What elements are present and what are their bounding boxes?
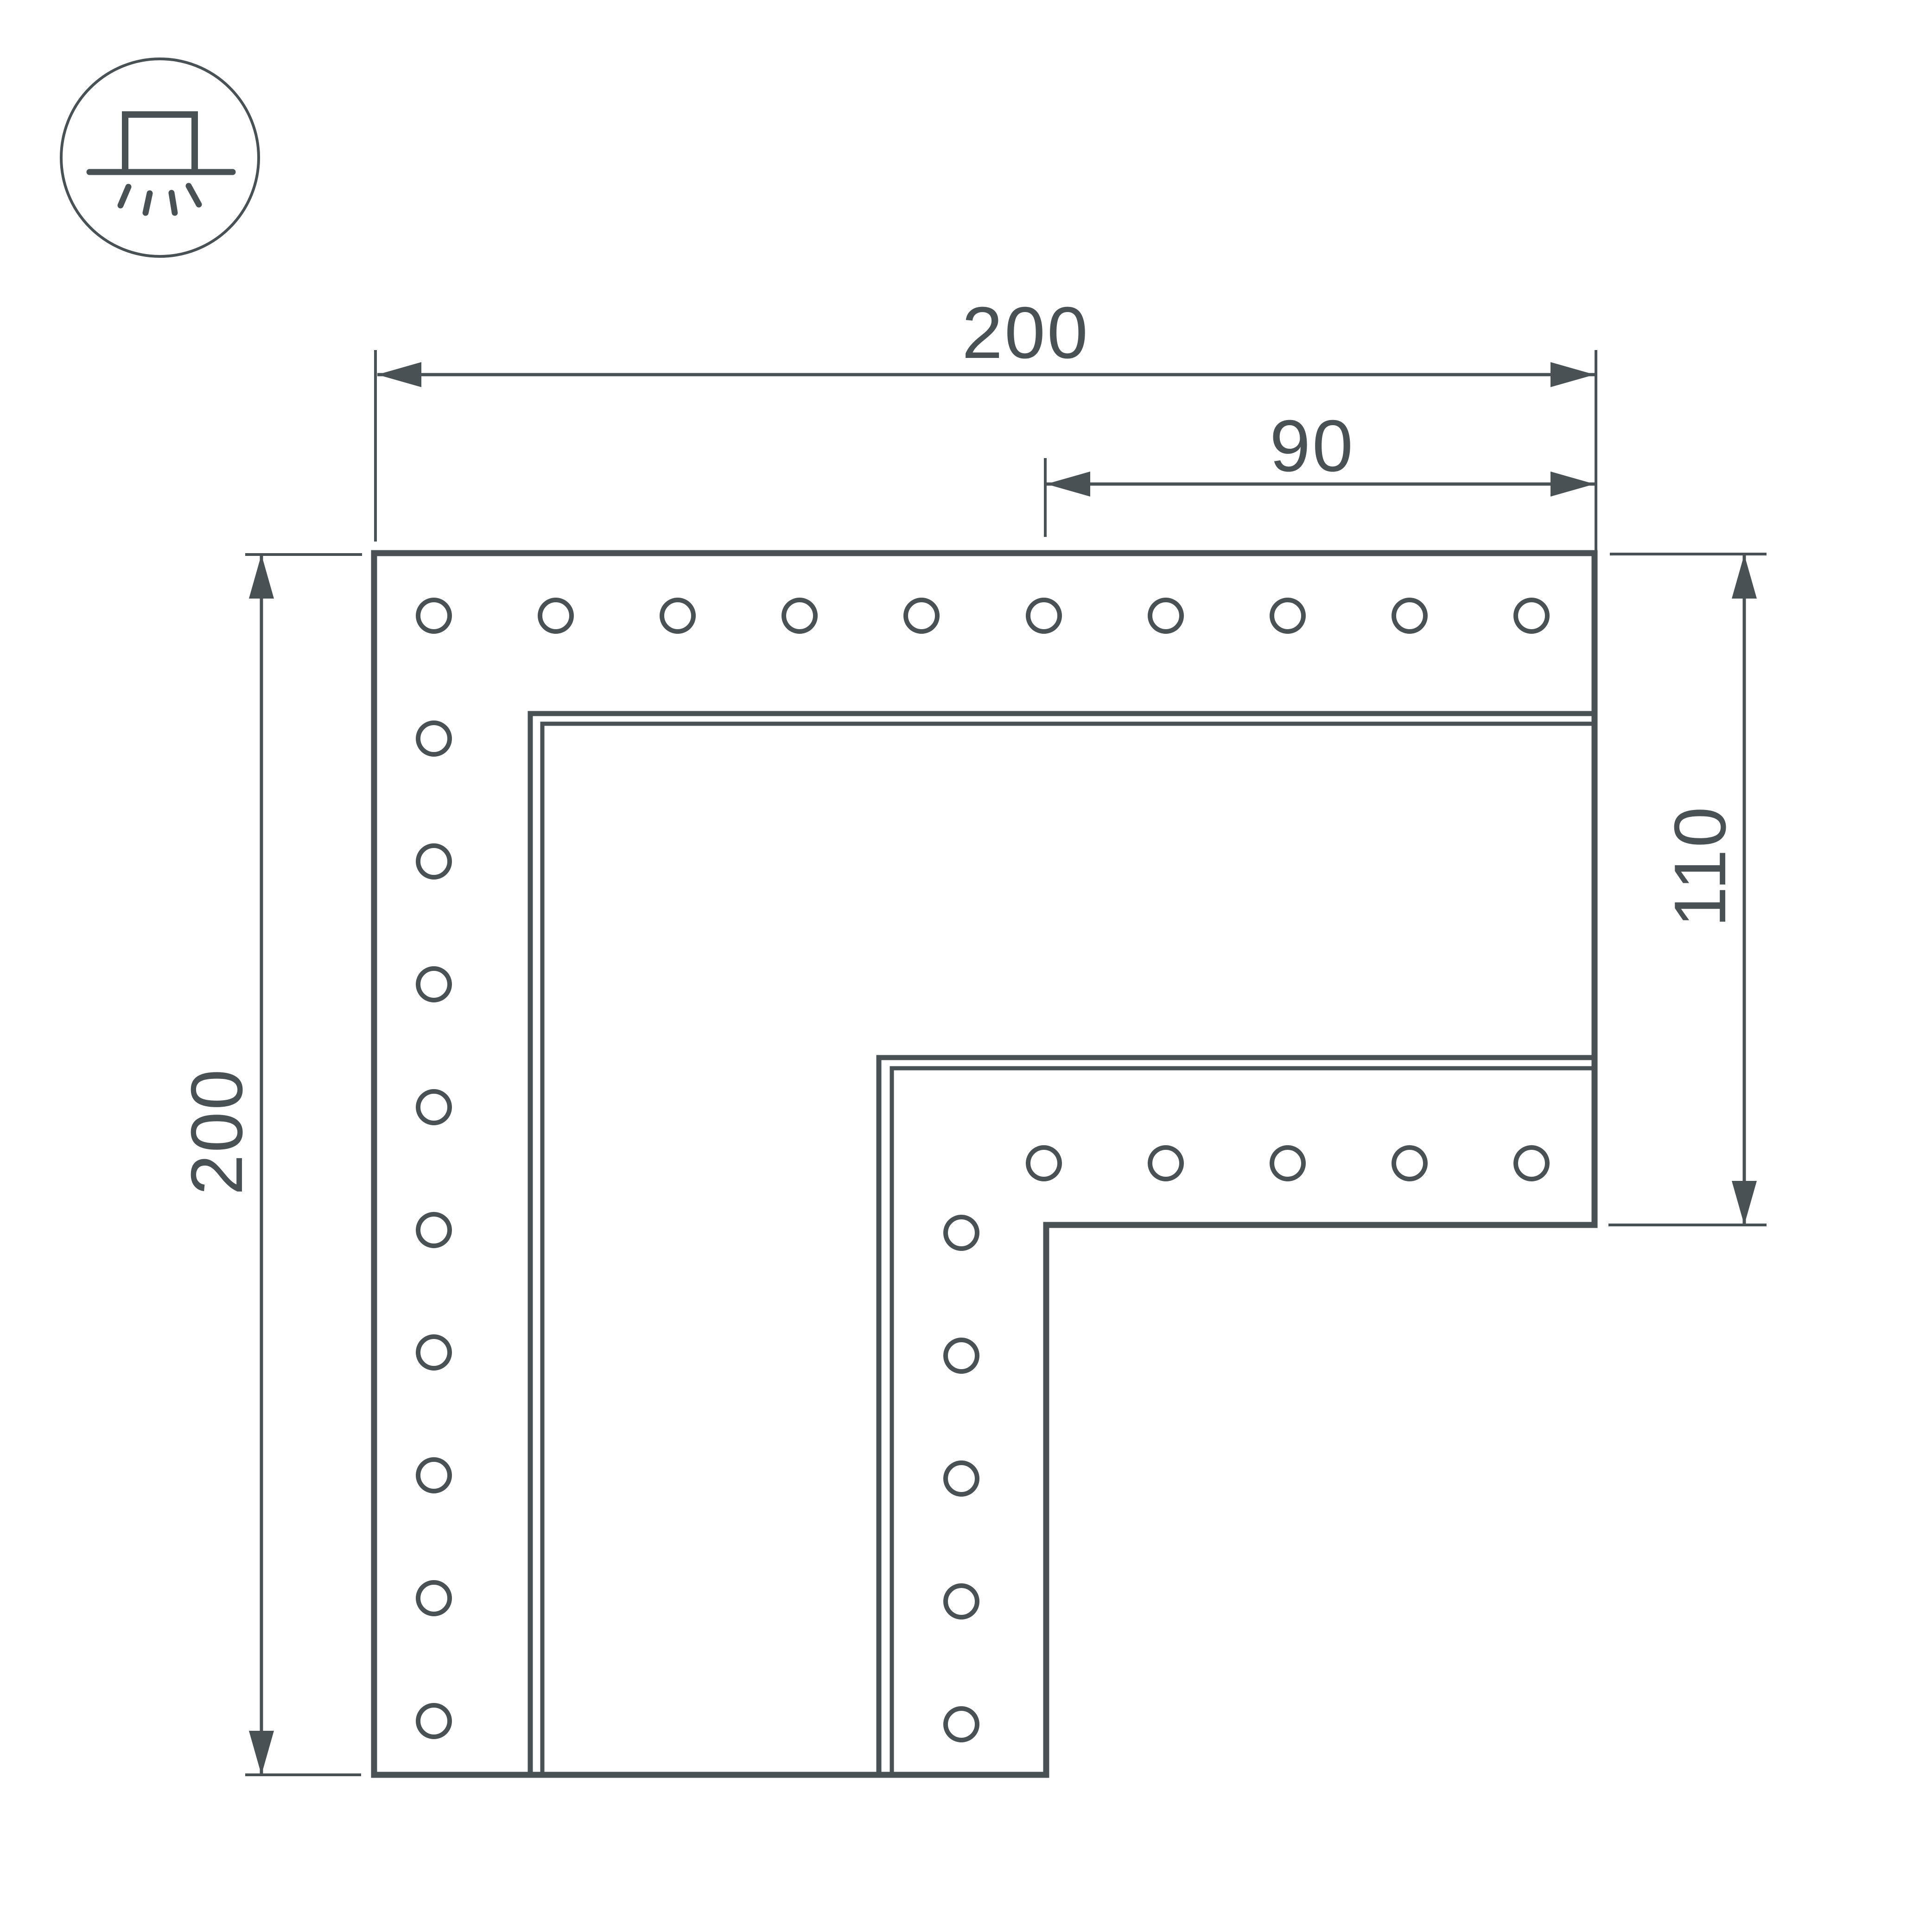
mounting-hole bbox=[1394, 1148, 1425, 1179]
mounting-hole bbox=[418, 1091, 450, 1123]
mounting-hole bbox=[1394, 600, 1425, 631]
mounting-hole bbox=[946, 1463, 977, 1494]
inner-plate-seam-line-inner bbox=[892, 1068, 1595, 1775]
technical-drawing-page: 200 90 200 110 bbox=[0, 0, 1932, 1932]
mounting-hole bbox=[1272, 1148, 1303, 1179]
mounting-hole bbox=[418, 1337, 450, 1368]
extension-lines bbox=[245, 350, 1767, 1775]
dimension-lines bbox=[261, 375, 1744, 1775]
mounting-hole bbox=[418, 600, 450, 631]
icon-light-ray bbox=[172, 193, 175, 213]
mounting-hole bbox=[1516, 1148, 1547, 1179]
mounting-hole bbox=[946, 1586, 977, 1617]
outer-plate-seam-line bbox=[530, 714, 1595, 1775]
mounting-hole bbox=[1150, 600, 1182, 631]
mounting-hole bbox=[418, 1214, 450, 1246]
mounting-hole bbox=[784, 600, 815, 631]
mounting-hole bbox=[418, 723, 450, 754]
mounting-hole bbox=[1516, 600, 1547, 631]
arrowhead-right-icon bbox=[1551, 472, 1595, 497]
mounting-hole bbox=[418, 969, 450, 1000]
mounting-hole bbox=[1028, 600, 1060, 631]
mounting-hole bbox=[418, 1582, 450, 1614]
mounting-hole bbox=[1150, 1148, 1182, 1179]
icon-light-ray bbox=[189, 186, 199, 204]
mounting-hole bbox=[906, 600, 937, 631]
dimension-label-right-height: 110 bbox=[1659, 805, 1741, 927]
dimension-label-top-width: 200 bbox=[962, 292, 1090, 374]
inner-plate-seam-line bbox=[879, 1058, 1595, 1775]
surface-mounted-luminaire-icon bbox=[61, 59, 259, 256]
mounting-hole bbox=[946, 1340, 977, 1371]
mounting-hole bbox=[662, 600, 693, 631]
mounting-hole bbox=[418, 846, 450, 877]
arrowhead-down-icon bbox=[249, 1731, 274, 1775]
arrowhead-left-icon bbox=[377, 362, 421, 387]
arrowhead-down-icon bbox=[1732, 1181, 1757, 1225]
arrowhead-right-icon bbox=[1551, 362, 1595, 387]
mounting-hole bbox=[1028, 1148, 1060, 1179]
mounting-hole bbox=[418, 1705, 450, 1737]
dimension-label-left-height: 200 bbox=[176, 1067, 258, 1195]
icon-fixture-box bbox=[125, 115, 195, 172]
mounting-hole bbox=[946, 1709, 977, 1740]
profile-body bbox=[374, 553, 1595, 1775]
dimension-annotations: 200 90 200 110 bbox=[176, 292, 1767, 1775]
icon-circle bbox=[61, 59, 259, 256]
arrowhead-left-icon bbox=[1046, 472, 1090, 497]
profile-outer-outline bbox=[374, 553, 1595, 1775]
dimension-label-opening-width: 90 bbox=[1270, 405, 1355, 487]
mounting-hole bbox=[1272, 600, 1303, 631]
arrowhead-up-icon bbox=[1732, 555, 1757, 599]
mounting-hole bbox=[418, 1460, 450, 1491]
icon-light-ray bbox=[146, 193, 150, 213]
icon-light-ray bbox=[121, 187, 128, 205]
mounting-hole bbox=[946, 1217, 977, 1249]
l-connector-drawing: 200 90 200 110 bbox=[0, 0, 1932, 1932]
outer-plate-seam-line-inner bbox=[542, 724, 1595, 1775]
icon-light-rays bbox=[121, 186, 199, 213]
arrowhead-up-icon bbox=[249, 555, 274, 599]
mounting-hole bbox=[540, 600, 572, 631]
mounting-holes bbox=[418, 600, 1547, 1740]
